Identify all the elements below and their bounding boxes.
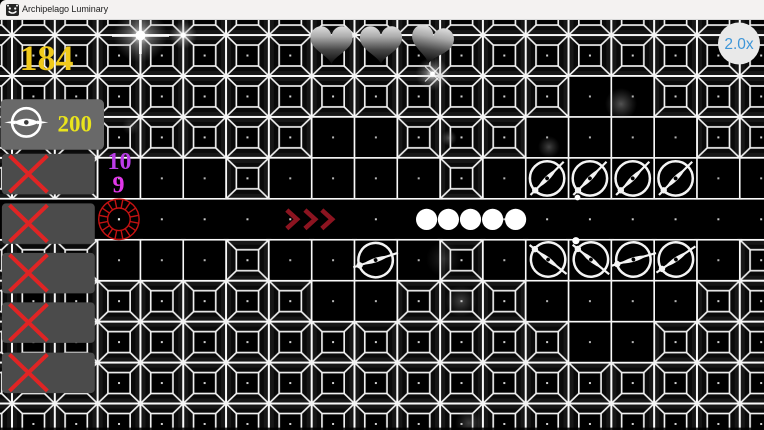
svg-text:200: 200 <box>58 112 93 137</box>
svg-text:9: 9 <box>113 173 125 199</box>
svg-text:10: 10 <box>108 149 132 175</box>
svg-text:184: 184 <box>20 38 74 78</box>
svg-text:2.0x: 2.0x <box>724 36 754 53</box>
